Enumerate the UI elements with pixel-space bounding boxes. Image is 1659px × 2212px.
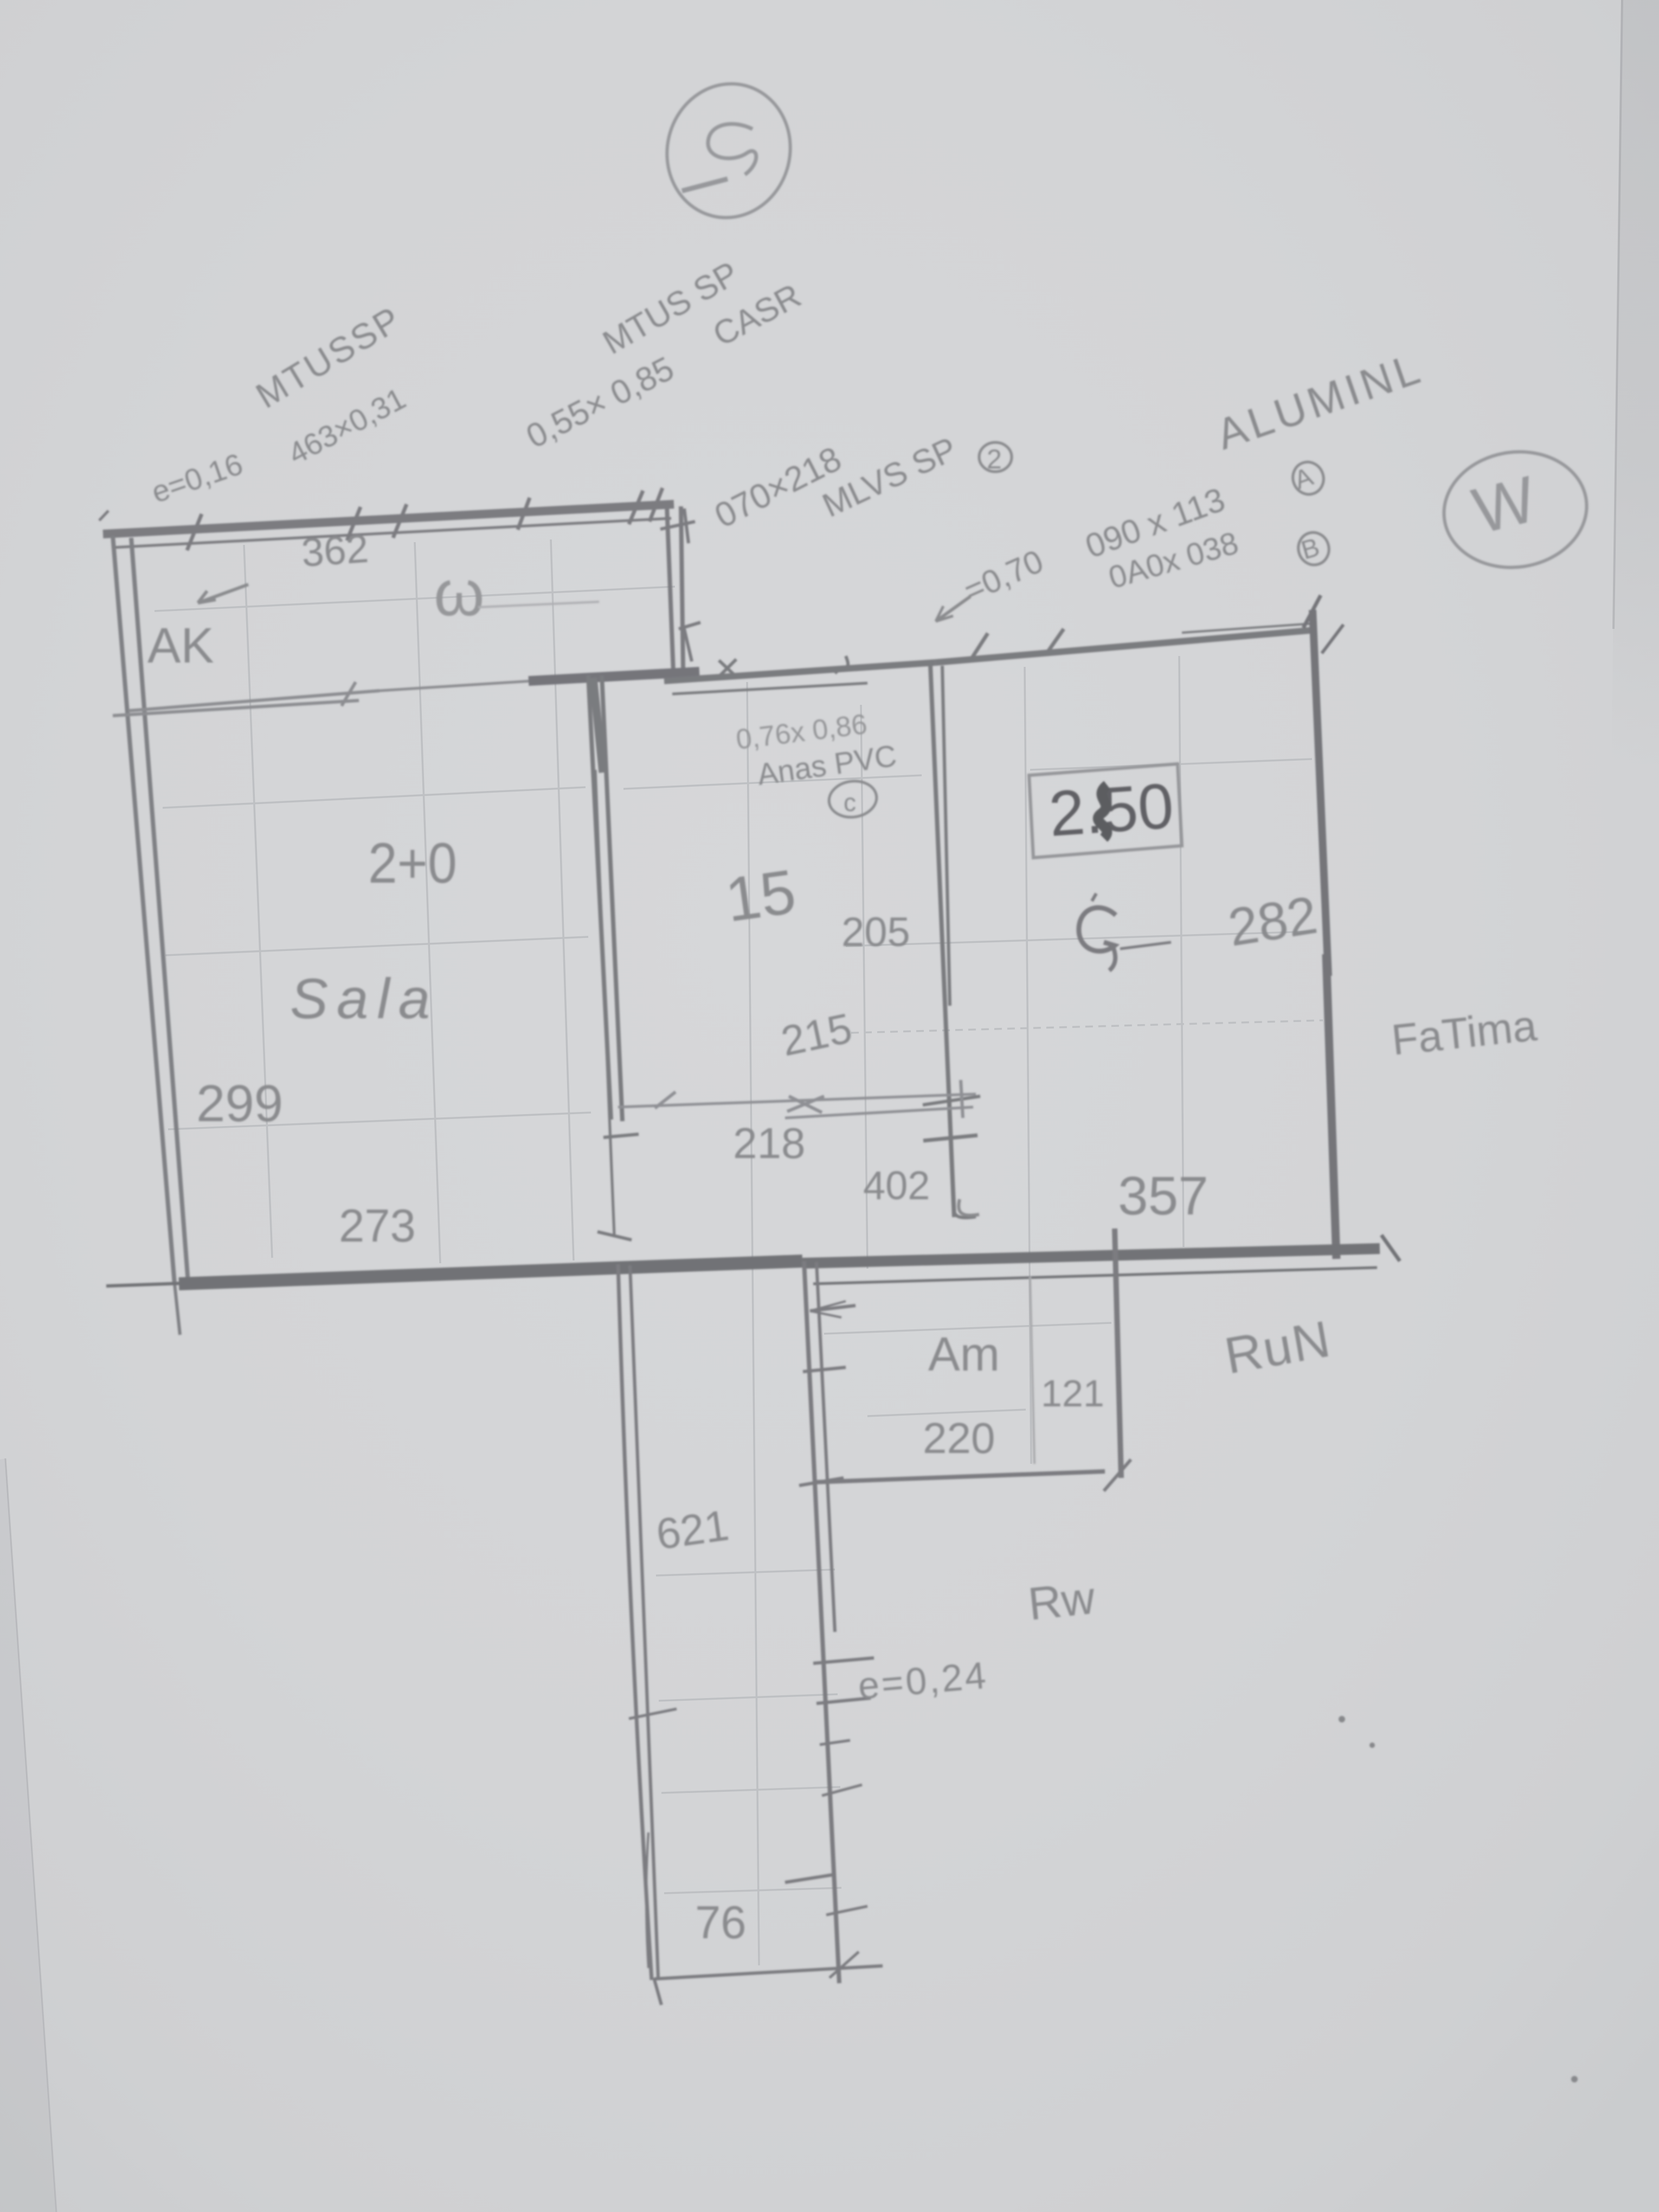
svg-text:205: 205 <box>841 909 910 955</box>
svg-text:273: 273 <box>339 1200 416 1252</box>
svg-text:357: 357 <box>1118 1166 1208 1226</box>
svg-text:AK: AK <box>147 618 214 673</box>
svg-text:76: 76 <box>695 1897 747 1949</box>
svg-text:2.50: 2.50 <box>1047 770 1176 850</box>
svg-text:121: 121 <box>1041 1372 1104 1414</box>
svg-text:15: 15 <box>722 857 800 935</box>
svg-text:Rw: Rw <box>1026 1572 1098 1630</box>
svg-text:362: 362 <box>300 526 370 575</box>
svg-text:c: c <box>844 788 856 816</box>
svg-text:ω: ω <box>434 557 485 629</box>
svg-text:220: 220 <box>923 1414 995 1462</box>
svg-text:299: 299 <box>196 1075 283 1133</box>
svg-text:Sala: Sala <box>290 967 439 1031</box>
svg-text:Am: Am <box>928 1327 1000 1381</box>
svg-text:402: 402 <box>863 1163 930 1208</box>
svg-text:621: 621 <box>653 1501 732 1559</box>
svg-text:2: 2 <box>987 444 1002 474</box>
svg-text:218: 218 <box>733 1119 805 1167</box>
svg-text:2+0: 2+0 <box>368 832 457 895</box>
